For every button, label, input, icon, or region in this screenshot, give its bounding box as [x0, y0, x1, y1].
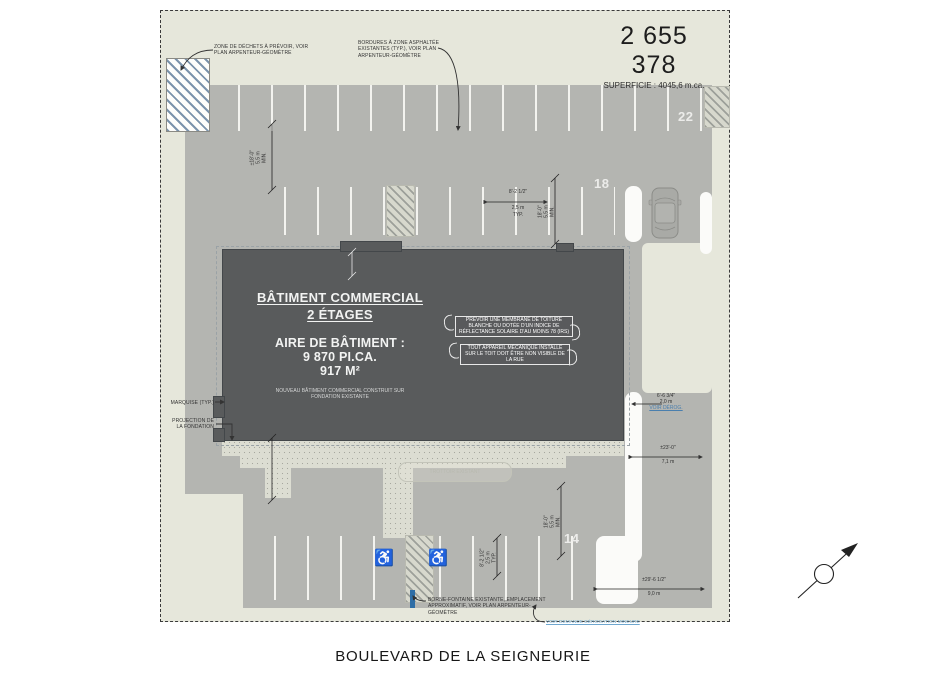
dim-aisle-bottom: 18'-0" 5,5 m MIN. — [544, 499, 561, 545]
parking-count-top: 22 — [678, 109, 693, 124]
waste-zone-note: ZONE DE DÉCHETS À PRÉVOIR, VOIR PLAN ARP… — [214, 44, 312, 57]
mech-note: TOUT APPAREIL MÉCANIQUE INSTALLÉ SUR LE … — [460, 344, 570, 365]
dim-side-setback: 6'-6 3/4" 2,0 m VOIR DÉROG. — [640, 394, 692, 411]
parking-count-bottom: 14 — [564, 531, 579, 546]
marquise-note: MARQUISE (TYP.) — [168, 400, 214, 406]
waste-zone-hatch — [166, 58, 210, 132]
stall-row-middle — [253, 187, 615, 235]
dim-aisle-top-right: 18'-0" 5,5 m MIN. — [538, 189, 555, 235]
building-footnote: NOUVEAU BÂTIMENT COMMERCIAL CONSTRUIT SU… — [275, 388, 405, 400]
dim-bottom-aisle-metric: 9,0 m — [614, 592, 694, 598]
sidewalk-west — [265, 456, 291, 498]
building-subtitle: 2 ÉTAGES — [240, 307, 440, 322]
dim-handicap-stall: 8'-2 1/2" 2,5 m TYP. — [480, 535, 497, 581]
handicap-icon: ♿ — [374, 548, 394, 568]
crosswalk-hatch-top — [386, 185, 415, 237]
curb-island-top — [625, 186, 642, 242]
dim-right-aisle-metric: 7,1 m — [634, 460, 702, 466]
curb-island-east — [700, 192, 712, 254]
landscape-notch — [162, 494, 243, 608]
stall-row-top — [207, 85, 702, 131]
building-title: BÂTIMENT COMMERCIAL — [240, 290, 440, 305]
dim-bottom-aisle-imperial: ±29'-6 1/2" — [614, 578, 694, 584]
site-plan-canvas: 2 655 378 SUPERFICIE : 4045,6 m.ca. TROT… — [0, 0, 926, 673]
building-area-metric: 917 M² — [240, 364, 440, 378]
building-label: BÂTIMENT COMMERCIAL 2 ÉTAGES AIRE DE BÂT… — [240, 290, 440, 378]
hydrant-marker — [410, 590, 415, 608]
hydrant-note: BORNE-FONTAINE EXISTANTE, EMPLACEMENT AP… — [428, 597, 550, 616]
curbs-note: BORDURES À ZONE ASPHALTÉE EXISTANTES (TY… — [358, 40, 454, 59]
building-area-imperial: 9 870 PI.CA. — [240, 350, 440, 364]
building-vestibule — [340, 241, 402, 252]
foundation-note: PROJECTION DE LA FONDATION — [166, 418, 214, 431]
lot-superficie: SUPERFICIE : 4045,6 m.ca. — [596, 81, 712, 90]
marquise-canopy-2 — [213, 428, 225, 442]
roof-note: PRÉVOIR UNE MEMBRANE DE TOITURE BLANCHE … — [455, 316, 573, 337]
handicap-icon: ♿ — [428, 548, 448, 568]
dim-aisle-top-left: ±18'-0" 5,5 m MIN. — [250, 135, 267, 181]
lot-number: 2 655 378 — [596, 22, 712, 80]
dim-right-aisle-imperial: ±23'-0" — [634, 446, 702, 452]
lot-info: 2 655 378 SUPERFICIE : 4045,6 m.ca. — [596, 22, 712, 90]
curb-hatch-topright — [704, 86, 730, 128]
north-arrow-icon — [798, 543, 858, 598]
derogation-link[interactable]: VOIR DEMANDE DÉROGATION MINEURE — [546, 620, 640, 625]
sidewalk-label: TROTTOIR EXISTANT — [398, 462, 512, 482]
landscape-right — [642, 243, 712, 393]
street-name: BOULEVARD DE LA SEIGNEURIE — [0, 648, 926, 665]
building-bump-right — [556, 243, 574, 252]
parking-count-right: 18 — [594, 176, 609, 191]
building-area-label: AIRE DE BÂTIMENT : — [240, 336, 440, 350]
marquise-canopy — [213, 396, 225, 418]
